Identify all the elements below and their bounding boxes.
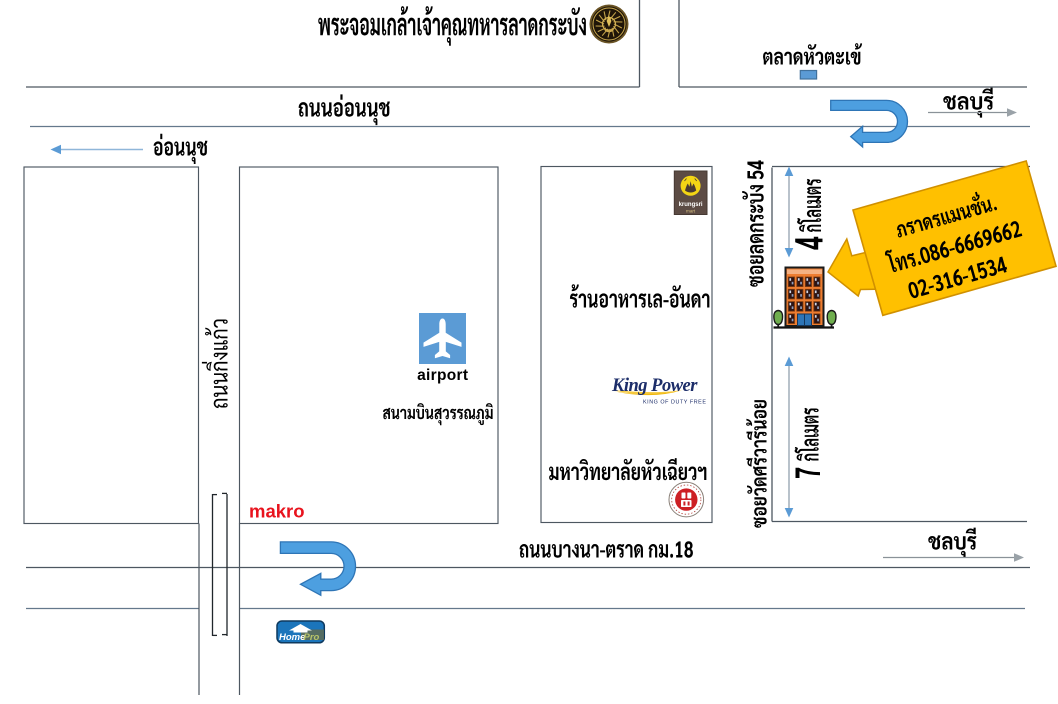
svg-text:Home: Home (279, 632, 306, 643)
svg-text:King Power: King Power (611, 376, 698, 396)
svg-text:krungsri: krungsri (679, 202, 703, 208)
svg-text:Pro: Pro (304, 632, 320, 643)
svg-text:makro: makro (249, 501, 305, 522)
svg-text:KING OF DUTY FREE: KING OF DUTY FREE (643, 400, 706, 406)
svg-text:airport: airport (417, 367, 468, 384)
svg-text:mart: mart (686, 209, 696, 214)
